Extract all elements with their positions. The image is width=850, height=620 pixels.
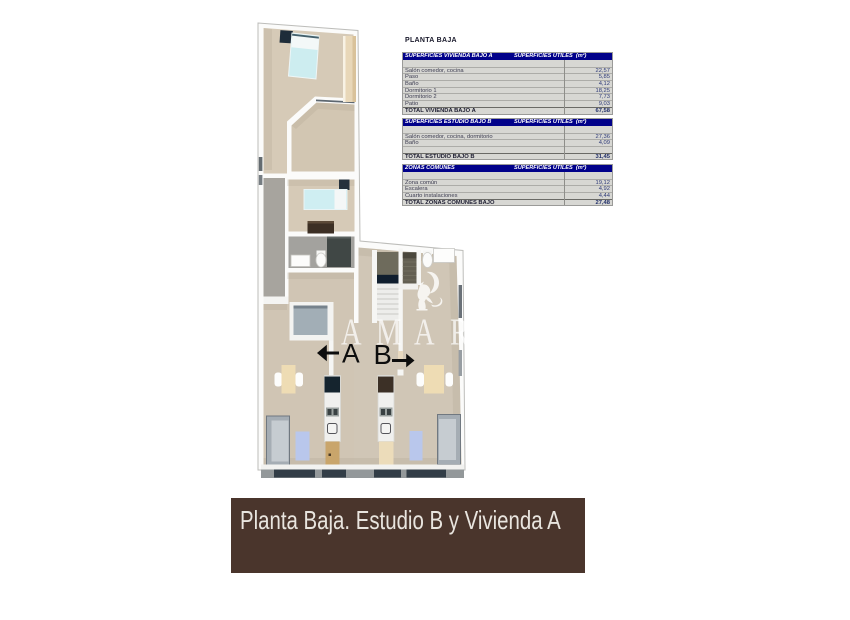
svg-text:B: B [374, 339, 392, 370]
svg-text:A: A [342, 339, 360, 369]
svg-text:R: R [450, 312, 470, 354]
svg-text:A: A [414, 312, 435, 354]
